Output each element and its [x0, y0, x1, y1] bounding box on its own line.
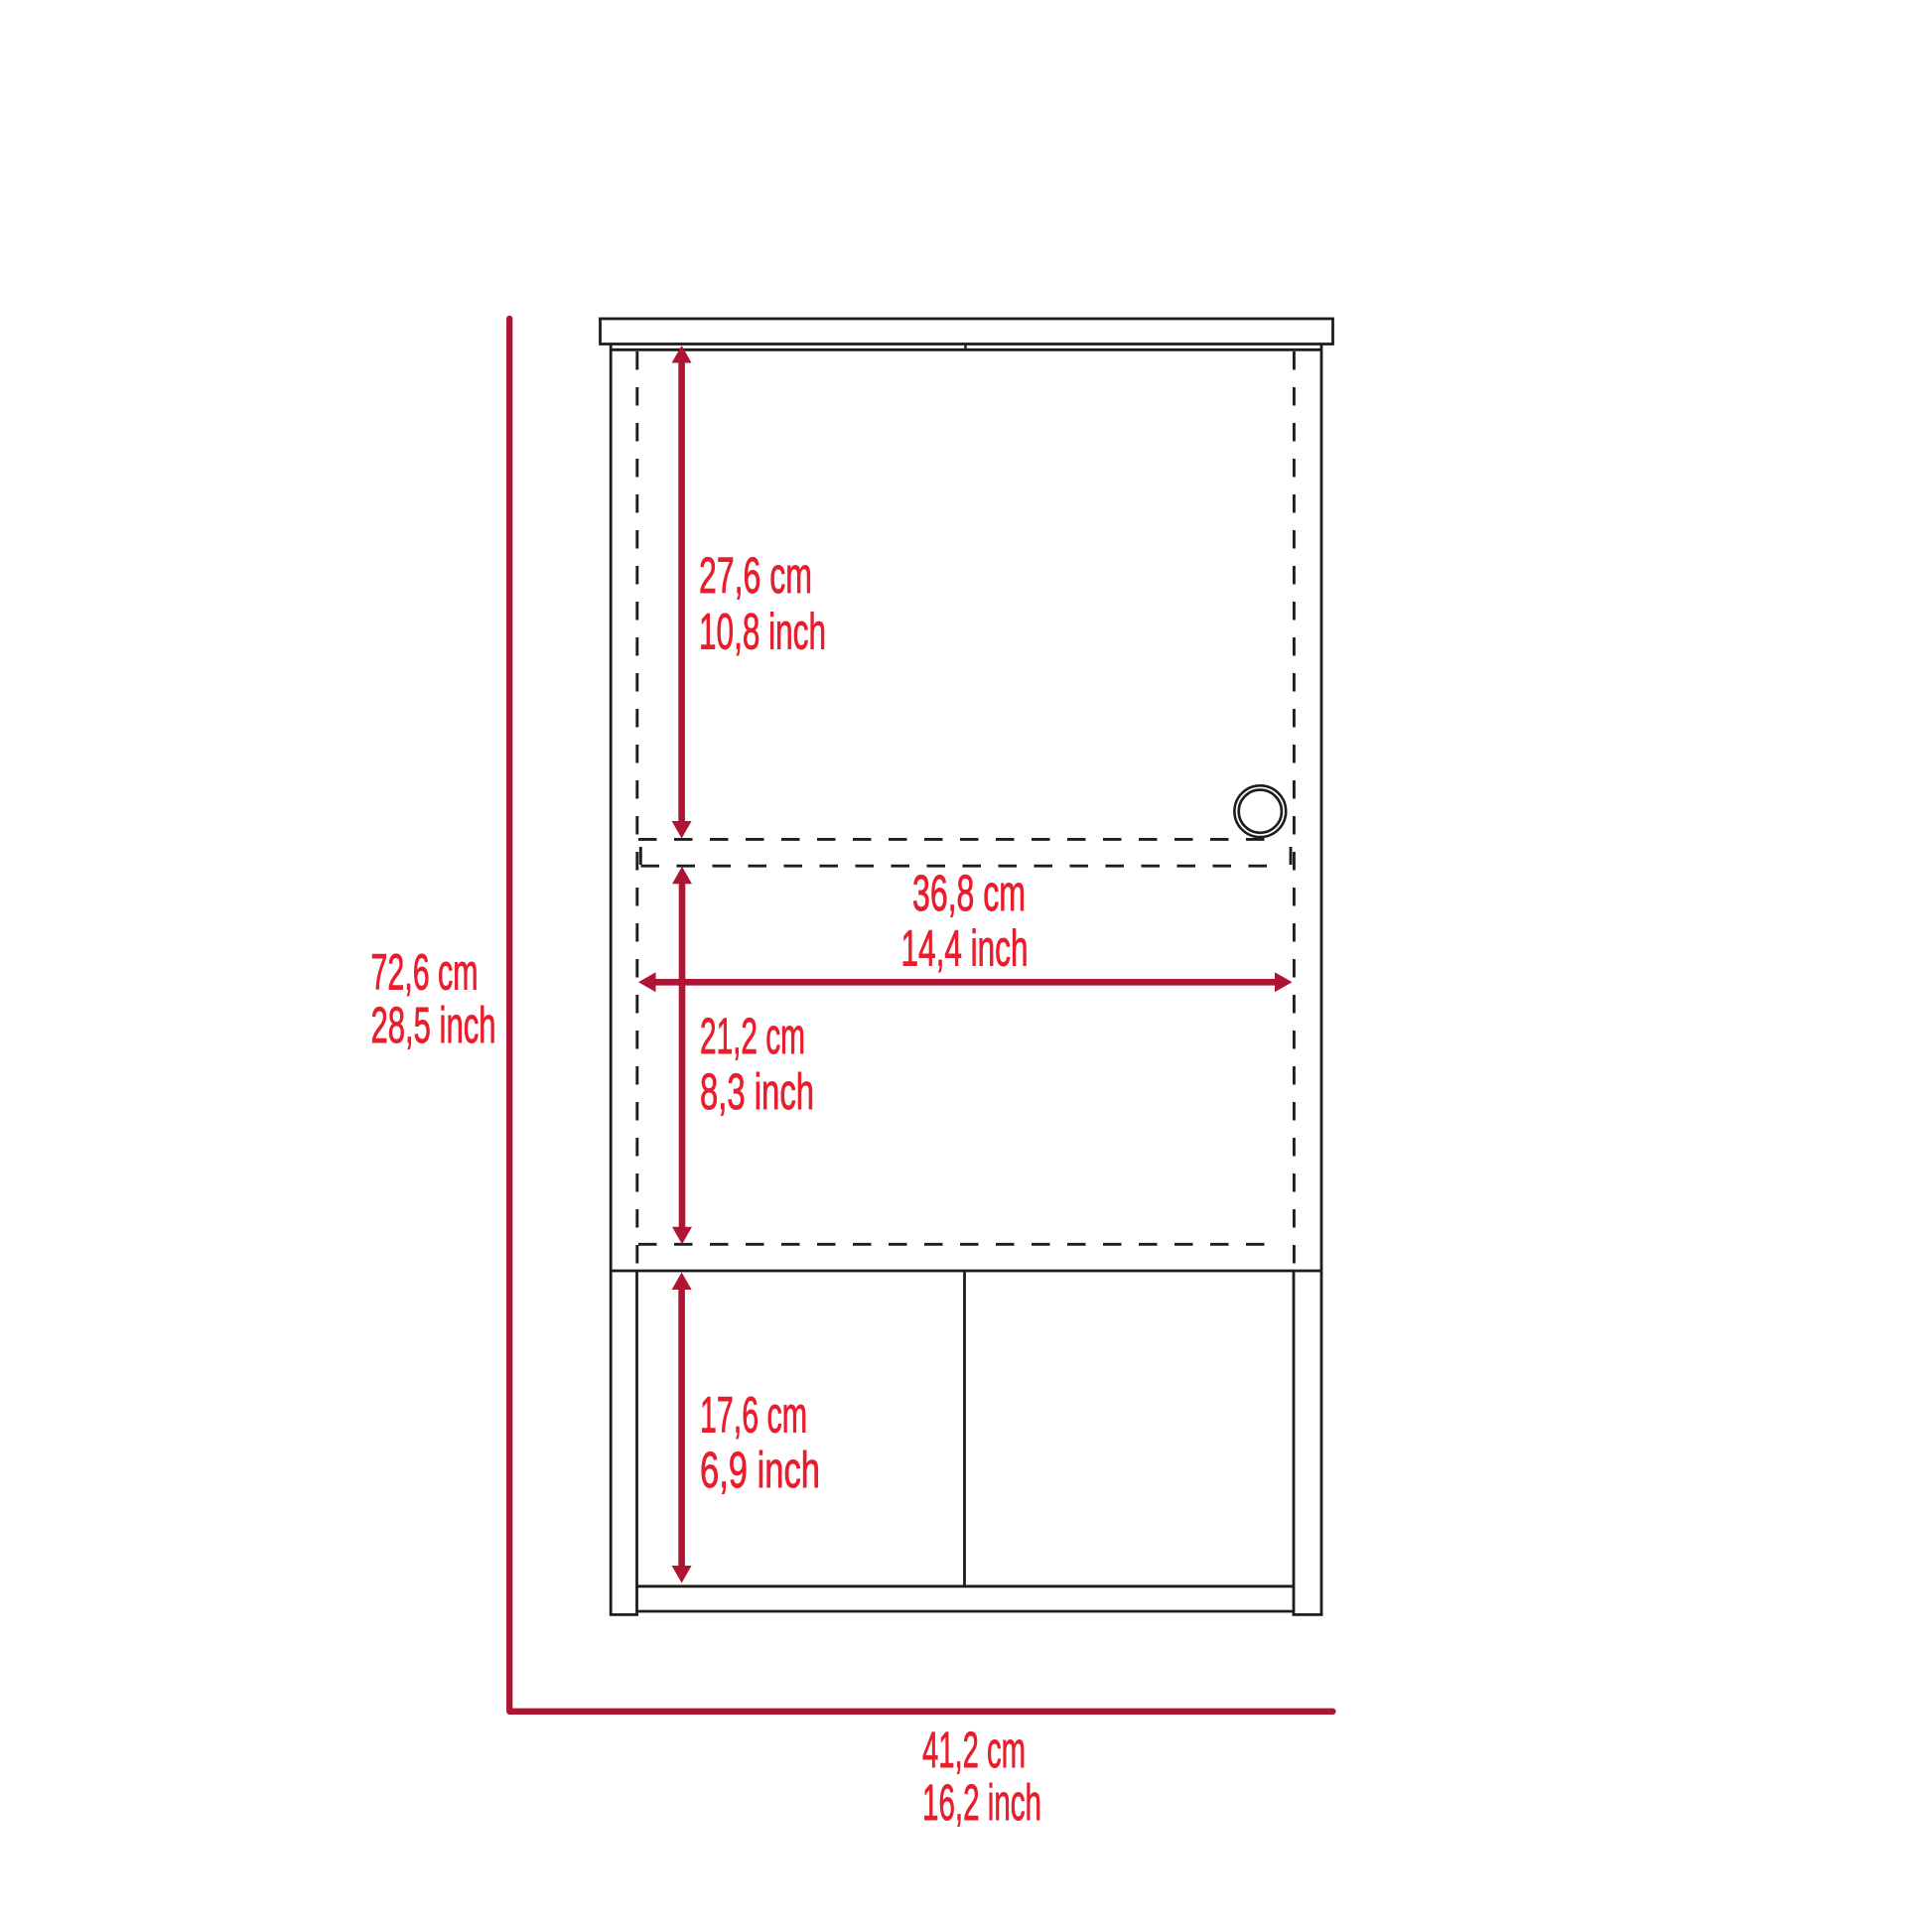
svg-text:6,9 inch: 6,9 inch [700, 1442, 820, 1498]
svg-text:72,6 cm: 72,6 cm [371, 944, 479, 1001]
svg-text:17,6 cm: 17,6 cm [700, 1387, 807, 1444]
svg-text:27,6 cm: 27,6 cm [699, 547, 812, 604]
svg-text:10,8 inch: 10,8 inch [699, 604, 826, 660]
svg-text:14,4 inch: 14,4 inch [901, 919, 1029, 976]
svg-text:28,5 inch: 28,5 inch [371, 997, 496, 1053]
svg-text:36,8 cm: 36,8 cm [912, 865, 1026, 921]
svg-text:16,2 inch: 16,2 inch [922, 1774, 1041, 1831]
svg-text:41,2 cm: 41,2 cm [922, 1722, 1026, 1778]
svg-text:21,2 cm: 21,2 cm [700, 1008, 805, 1064]
svg-text:8,3 inch: 8,3 inch [700, 1063, 814, 1120]
